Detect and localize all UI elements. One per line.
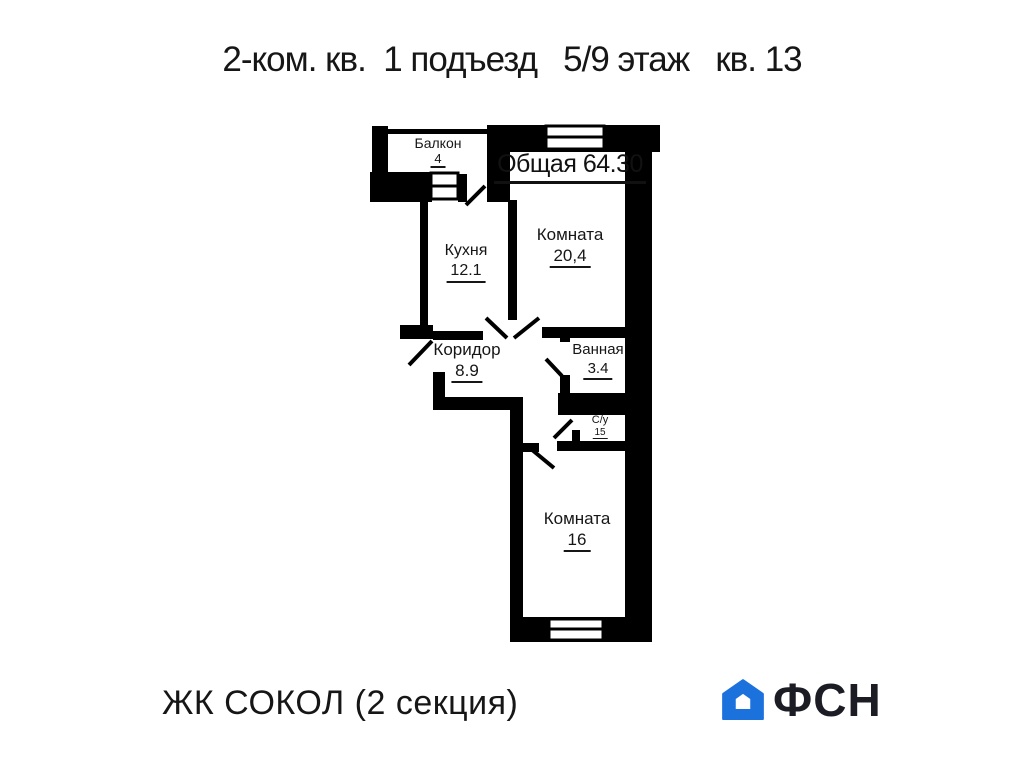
room-label-corridor: Коридор 8.9 bbox=[433, 341, 500, 383]
kitchen-door bbox=[486, 318, 507, 338]
house-icon bbox=[720, 677, 766, 723]
logo-text: ФСН bbox=[773, 677, 882, 723]
balcony-window bbox=[431, 173, 458, 199]
room-area: 12.1 bbox=[446, 263, 485, 283]
room16-window bbox=[549, 619, 603, 640]
room-area: 16 bbox=[564, 531, 591, 552]
room20-door bbox=[514, 318, 539, 338]
room-name: Коридор bbox=[433, 341, 500, 359]
room-name: С/у bbox=[592, 415, 609, 427]
room-label-room-20: Комната 20,4 bbox=[537, 226, 604, 268]
room-name: Ванная bbox=[572, 342, 623, 358]
room-area: 15 bbox=[592, 428, 607, 440]
room-name: Комната bbox=[537, 226, 604, 244]
floor-plan-page: 2-ком. кв. 1 подъезд 5/9 этаж кв. 13 bbox=[0, 0, 1024, 768]
room-area: 20,4 bbox=[549, 247, 590, 268]
fsn-logo: ФСН bbox=[720, 677, 882, 723]
room-area: 8.9 bbox=[451, 362, 483, 383]
room-area: 3.4 bbox=[584, 361, 613, 380]
room16-door bbox=[531, 449, 554, 468]
total-area-label: Общая 64.30 bbox=[494, 150, 646, 184]
balcony-door bbox=[466, 186, 485, 205]
room-name: Комната bbox=[544, 510, 611, 528]
entrance-door bbox=[409, 341, 432, 365]
floor-plan-drawing bbox=[0, 0, 1024, 768]
room-name: Балкон bbox=[415, 136, 462, 151]
room-label-room-16: Комната 16 bbox=[544, 510, 611, 552]
room-area: 4 bbox=[430, 152, 445, 169]
walls bbox=[370, 125, 660, 642]
bathroom-door bbox=[546, 359, 562, 376]
project-name: ЖК СОКОЛ (2 секция) bbox=[162, 684, 518, 723]
room-label-kitchen: Кухня 12.1 bbox=[445, 243, 488, 283]
room-label-su: С/у 15 bbox=[592, 415, 609, 439]
room-name: Кухня bbox=[445, 243, 488, 260]
room-label-balcony: Балкон 4 bbox=[415, 136, 462, 168]
su-door bbox=[554, 420, 572, 438]
room20-window bbox=[546, 126, 604, 149]
room-label-bathroom: Ванная 3.4 bbox=[572, 342, 623, 380]
